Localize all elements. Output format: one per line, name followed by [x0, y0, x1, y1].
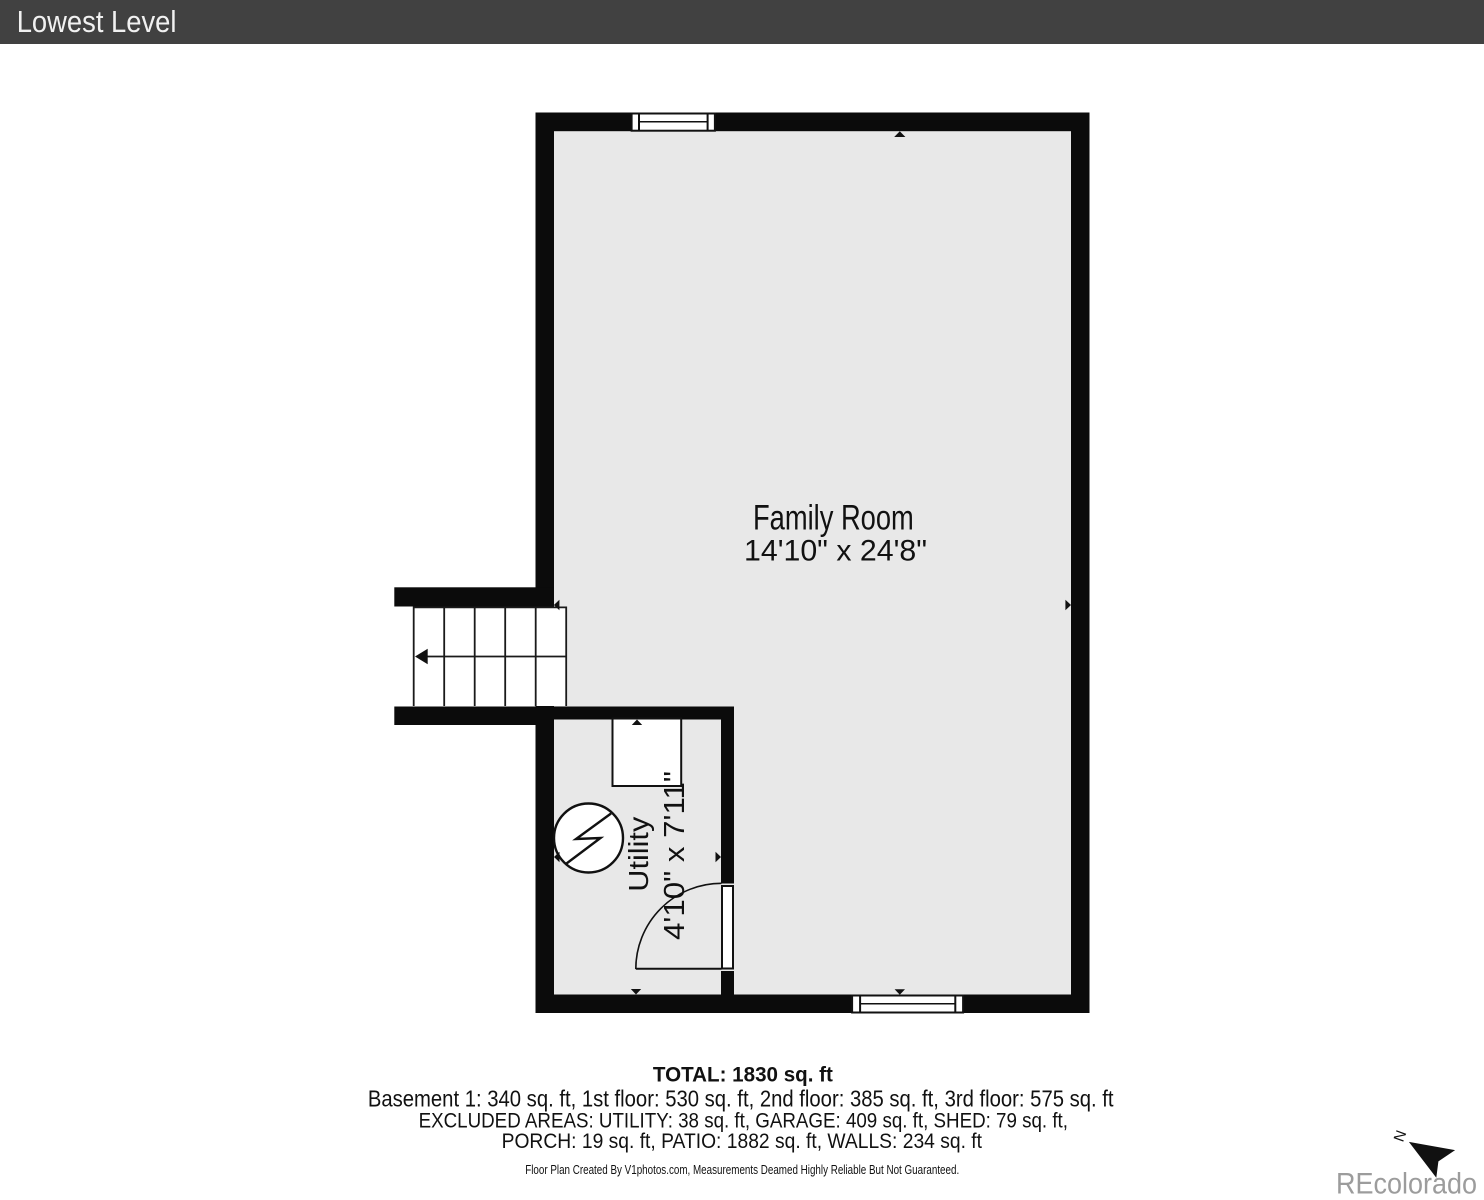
svg-text:EXCLUDED AREAS: UTILITY: 38 sq: EXCLUDED AREAS: UTILITY: 38 sq. ft, GARA…	[419, 1109, 1068, 1132]
svg-text:TOTAL: 1830 sq. ft: TOTAL: 1830 sq. ft	[653, 1062, 833, 1086]
svg-text:Utility: Utility	[623, 817, 654, 892]
svg-text:4'10" x 7'11": 4'10" x 7'11"	[659, 771, 691, 940]
svg-text:N: N	[1391, 1128, 1411, 1144]
svg-text:Floor Plan Created By V1photos: Floor Plan Created By V1photos.com, Meas…	[525, 1162, 959, 1177]
svg-text:Family Room: Family Room	[753, 497, 914, 537]
svg-text:PORCH: 19 sq. ft, PATIO: 1882: PORCH: 19 sq. ft, PATIO: 1882 sq. ft, WA…	[502, 1130, 983, 1153]
svg-text:Lowest Level: Lowest Level	[17, 5, 177, 39]
svg-text:REcolorado: REcolorado	[1336, 1168, 1477, 1200]
svg-text:Basement 1: 340 sq. ft, 1st fl: Basement 1: 340 sq. ft, 1st floor: 530 s…	[368, 1086, 1114, 1112]
svg-text:14'10" x 24'8": 14'10" x 24'8"	[744, 534, 927, 567]
